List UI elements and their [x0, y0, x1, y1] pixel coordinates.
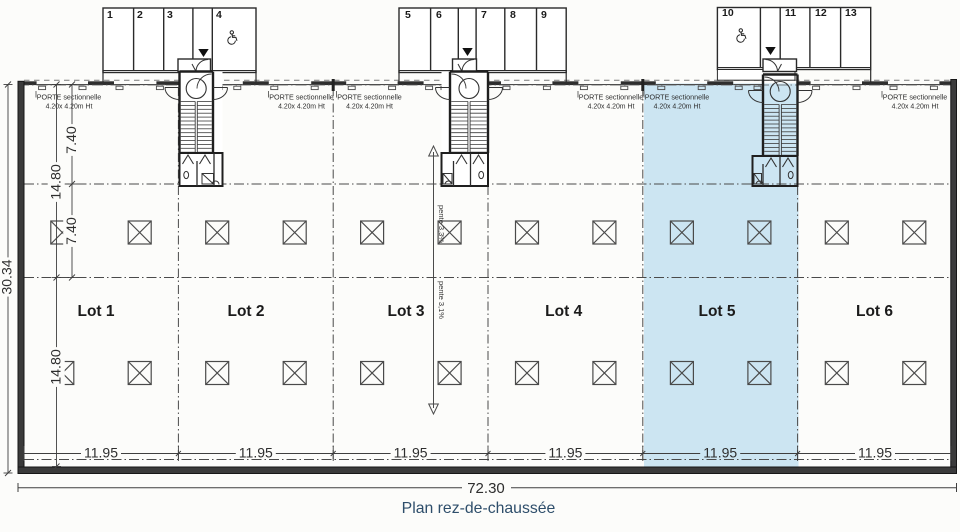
svg-text:Lot 2: Lot 2	[227, 303, 264, 320]
svg-text:7.40: 7.40	[64, 126, 80, 154]
svg-text:6: 6	[436, 9, 442, 21]
svg-text:Lot 1: Lot 1	[77, 303, 114, 320]
svg-text:11.95: 11.95	[84, 445, 118, 461]
svg-text:PORTE sectionnelle: PORTE sectionnelle	[579, 93, 644, 102]
svg-text:14.80: 14.80	[48, 349, 64, 385]
svg-text:11.95: 11.95	[548, 445, 582, 461]
svg-text:11: 11	[785, 7, 796, 19]
svg-text:8: 8	[510, 9, 516, 21]
svg-text:14.80: 14.80	[48, 164, 64, 200]
svg-text:1: 1	[107, 9, 113, 21]
svg-text:11.95: 11.95	[703, 445, 737, 461]
svg-text:13: 13	[845, 7, 857, 19]
svg-text:4.20x 4.20m Ht: 4.20x 4.20m Ht	[278, 104, 325, 111]
svg-text:30.34: 30.34	[0, 259, 15, 294]
svg-text:11.95: 11.95	[858, 445, 892, 461]
svg-text:PORTE sectionnelle: PORTE sectionnelle	[645, 93, 710, 102]
svg-text:PORTE sectionnelle: PORTE sectionnelle	[269, 93, 334, 102]
svg-text:Lot 6: Lot 6	[856, 303, 893, 320]
svg-text:Lot 5: Lot 5	[698, 303, 735, 320]
svg-text:2: 2	[137, 9, 143, 21]
svg-text:9: 9	[541, 9, 547, 21]
svg-text:Lot 4: Lot 4	[545, 303, 582, 320]
svg-text:10: 10	[722, 7, 734, 19]
svg-text:12: 12	[815, 7, 827, 19]
svg-text:4.20x 4.20m Ht: 4.20x 4.20m Ht	[892, 104, 939, 111]
svg-text:Lot 3: Lot 3	[387, 303, 424, 320]
svg-text:PORTE sectionnelle: PORTE sectionnelle	[883, 93, 948, 102]
svg-text:4.20x 4.20m Ht: 4.20x 4.20m Ht	[346, 104, 393, 111]
svg-text:72.30: 72.30	[467, 480, 505, 497]
svg-text:7: 7	[481, 9, 487, 21]
svg-text:4.20x 4.20m Ht: 4.20x 4.20m Ht	[654, 104, 701, 111]
svg-text:4.20x 4.20m Ht: 4.20x 4.20m Ht	[588, 104, 635, 111]
svg-text:5: 5	[405, 9, 411, 21]
svg-text:4: 4	[216, 9, 222, 21]
svg-text:pente 3,1%: pente 3,1%	[437, 281, 446, 319]
svg-text:pente 3,3%: pente 3,3%	[437, 205, 446, 243]
svg-text:4.20x 4.20m Ht: 4.20x 4.20m Ht	[46, 104, 93, 111]
svg-text:7.40: 7.40	[64, 217, 80, 245]
svg-text:11.95: 11.95	[239, 445, 273, 461]
svg-text:PORTE sectionnelle: PORTE sectionnelle	[337, 93, 402, 102]
svg-text:Plan rez-de-chaussée: Plan rez-de-chaussée	[402, 500, 556, 517]
svg-text:PORTE sectionnelle: PORTE sectionnelle	[37, 93, 102, 102]
svg-text:3: 3	[167, 9, 173, 21]
svg-text:11.95: 11.95	[394, 445, 428, 461]
